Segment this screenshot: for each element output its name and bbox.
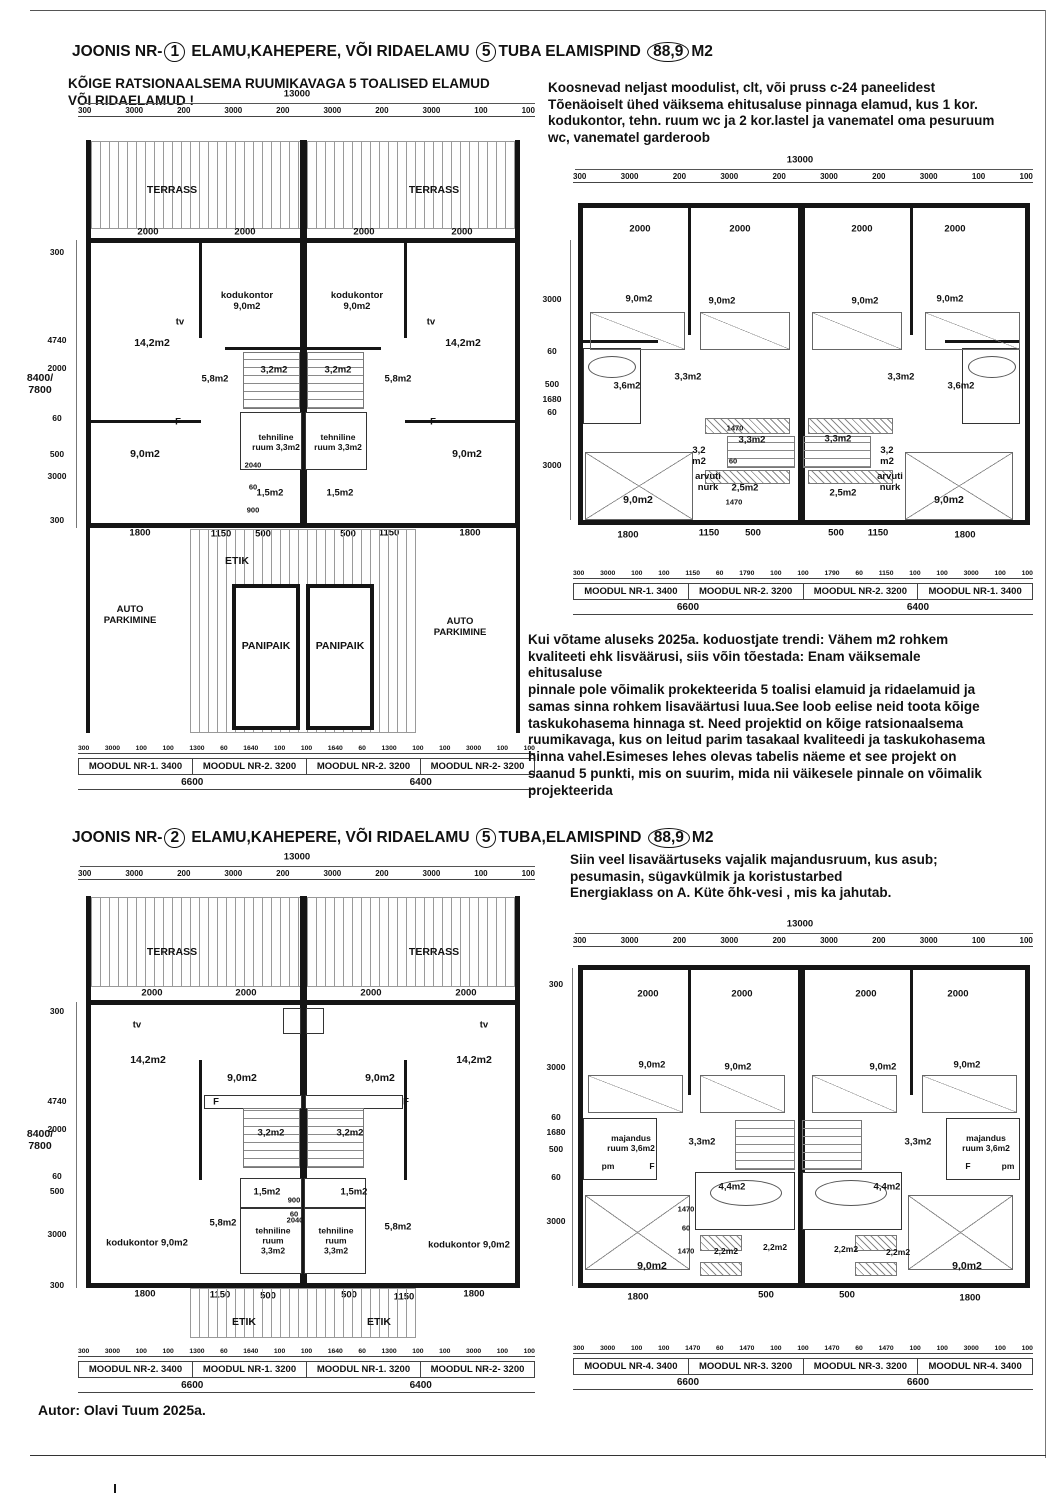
module-row: MOODUL NR-1. 3400 MOODUL NR-2. 3200 MOOD… <box>573 583 1033 600</box>
dim-value: 100 <box>163 1348 174 1355</box>
dim-value: 1790 <box>739 570 754 577</box>
room-label: TERRASS <box>147 184 197 196</box>
bed <box>905 452 1013 520</box>
module-label: MOODUL NR-3. 3200 <box>688 1359 803 1375</box>
dim-value: 100 <box>412 1348 423 1355</box>
room-label: 3,2m2 <box>258 1129 285 1140</box>
staircase <box>735 1120 795 1170</box>
room-count-circled: 5 <box>476 828 497 848</box>
fridge-label: F <box>175 418 181 429</box>
dim-value: 300 <box>78 106 91 115</box>
window-dim: 2000 <box>455 989 476 1000</box>
room-label: 3,3m2 <box>905 1138 932 1149</box>
dim-value: 300 <box>78 1348 89 1355</box>
fridge-label: F <box>430 418 436 429</box>
room-label: 2,5m2 <box>732 484 759 495</box>
dim-total-width: 13000 <box>284 90 310 101</box>
room-label: 9,0m2 <box>934 494 964 506</box>
room-label: TERRASS <box>409 184 459 196</box>
dim-value: 100 <box>301 745 312 752</box>
dim-value: 200 <box>177 106 190 115</box>
room-label: PANIPAIK <box>316 640 365 652</box>
dim-line-vertical <box>570 240 571 520</box>
dim-value: 100 <box>994 570 1005 577</box>
module-totals: 6600 6400 <box>78 1378 535 1393</box>
dim-value: 100 <box>497 1348 508 1355</box>
bed <box>700 1075 785 1113</box>
dim-label: 500 <box>745 529 761 540</box>
dim-value: 100 <box>1020 172 1033 181</box>
dim-line <box>80 103 535 104</box>
dim-label: 1150 <box>699 529 720 540</box>
room-label: 9,0m2 <box>623 494 653 506</box>
window-dim: 2000 <box>729 225 750 236</box>
bed <box>922 1075 1017 1113</box>
module-label: MOODUL NR-1. 3400 <box>78 759 192 775</box>
room-label: 5,8m2 <box>385 1223 412 1234</box>
window-dim: 2000 <box>851 225 872 236</box>
module-label: MOODUL NR-1. 3200 <box>192 1362 306 1378</box>
dim-line <box>575 933 1033 934</box>
title-text: JOONIS NR- <box>72 43 162 60</box>
sheet-border-right <box>1045 10 1046 1458</box>
room-label: TERRASS <box>147 946 197 958</box>
dim-value: 1150 <box>879 570 894 577</box>
dim-label: 1800 <box>954 531 975 542</box>
dim-value: 3000 <box>105 1348 120 1355</box>
room-label: 3,2m2 <box>337 1129 364 1140</box>
storage-walls <box>306 584 374 730</box>
drawing-number-circled: 2 <box>164 828 185 848</box>
module-row: MOODUL NR-4. 3400 MOODUL NR-3. 3200 MOOD… <box>573 1358 1033 1375</box>
dim-chain-bottom: 3003000100100147060147010010014706014701… <box>573 1345 1033 1354</box>
joonis1-subtitle: KÕIGE RATSIONAALSEMA RUUMIKAVAGA 5 TOALI… <box>68 76 490 109</box>
dim-value: 1300 <box>382 745 397 752</box>
dim-label: 500 <box>50 450 64 460</box>
dim-chain-bottom: 3003000100100130060164010010016406013001… <box>78 745 535 754</box>
dim-label: 1470 <box>726 499 743 508</box>
dim-value: 100 <box>301 1348 312 1355</box>
room-count-circled: 5 <box>476 42 497 62</box>
room-label: 1,5m2 <box>257 489 284 500</box>
dim-value: 100 <box>631 570 642 577</box>
dim-value: 60 <box>716 570 724 577</box>
dim-value: 200 <box>872 172 885 181</box>
dim-value: 200 <box>673 172 686 181</box>
interior-wall <box>404 243 407 338</box>
bed <box>925 312 1020 350</box>
dim-value: 100 <box>658 570 669 577</box>
room-label: 9,0m2 <box>637 1260 667 1272</box>
dim-label: 900 <box>288 1197 301 1206</box>
room-label: 3,2 m2 <box>692 446 706 468</box>
room-label: ETIK <box>225 555 249 567</box>
room-label: 14,2m2 <box>445 337 481 349</box>
dim-label: 500 <box>545 380 559 390</box>
dim-value: 60 <box>220 1348 228 1355</box>
module-totals: 6600 6400 <box>573 600 1033 615</box>
dim-value: 60 <box>855 1345 863 1352</box>
dim-chain-top: 3003000200300020030002003000100100 <box>78 869 535 880</box>
dim-label: 3000 <box>547 1063 566 1073</box>
module-label: MOODUL NR-2. 3200 <box>688 584 803 600</box>
module-label: MOODUL NR-2- 3200 <box>420 1362 535 1378</box>
total-dim: 6400 <box>803 600 1033 615</box>
dim-line <box>575 169 1033 170</box>
wardrobe <box>855 1262 897 1276</box>
dim-label: 60 <box>551 1113 560 1123</box>
window-dim: 2000 <box>855 990 876 1001</box>
wall <box>86 527 90 733</box>
dim-value: 3000 <box>224 869 242 878</box>
room-label: 1,5m2 <box>341 1188 368 1199</box>
room-label: 3,6m2 <box>614 382 641 393</box>
dim-label: 500 <box>828 529 844 540</box>
interior-wall <box>910 970 913 1095</box>
dim-value: 1300 <box>189 745 204 752</box>
room-label: 9,0m2 <box>954 1061 981 1072</box>
bed <box>812 1075 897 1113</box>
module-totals: 6600 6600 <box>573 1375 1033 1390</box>
dim-value: 100 <box>524 1348 535 1355</box>
room-label: 2,2m2 <box>763 1243 787 1253</box>
interior-wall <box>91 420 201 423</box>
module-label: MOODUL NR-1. 3400 <box>573 584 688 600</box>
dim-value: 100 <box>474 869 487 878</box>
room-label: AUTO PARKIMINE <box>434 617 487 639</box>
room-label: 3,2m2 <box>261 366 288 377</box>
dim-value: 3000 <box>920 172 938 181</box>
storage-walls <box>232 584 300 730</box>
window-dim: 2000 <box>944 225 965 236</box>
fridge-label: F <box>649 1162 654 1172</box>
dim-total-width: 13000 <box>284 853 310 864</box>
dim-value: 100 <box>1022 570 1033 577</box>
washer-label: pm <box>602 1162 615 1172</box>
room-label: ETIK <box>367 1316 391 1328</box>
dim-value: 100 <box>972 172 985 181</box>
dim-value: 1640 <box>328 745 343 752</box>
area-circled: 88,9 <box>648 828 690 848</box>
module-label: MOODUL NR-2. 3200 <box>306 759 420 775</box>
dim-label: 1680 <box>543 395 562 405</box>
dim-value: 3000 <box>621 936 639 945</box>
dim-value: 3000 <box>964 1345 979 1352</box>
sheet-border-top <box>30 10 1046 11</box>
joonis2-title: JOONIS NR-2 ELAMU,KAHEPERE, VÕI RIDAELAM… <box>72 828 713 848</box>
bed <box>588 1075 683 1113</box>
module-label: MOODUL NR-4. 3400 <box>573 1359 688 1375</box>
dim-label: 3000 <box>543 461 562 471</box>
window-dim: 2000 <box>629 225 650 236</box>
dim-label: 1150 <box>868 529 889 540</box>
room-label: 3,3m2 <box>888 373 915 384</box>
dim-value: 200 <box>375 869 388 878</box>
dim-value: 3000 <box>466 745 481 752</box>
room-label: 3,2 m2 <box>880 446 894 468</box>
module-label: MOODUL NR-3. 3200 <box>803 1359 918 1375</box>
room-label: 2,2m2 <box>714 1247 738 1257</box>
dim-label: 1800 <box>959 1294 980 1305</box>
room-label: 9,0m2 <box>130 448 160 460</box>
dim-label: 1800 <box>627 1293 648 1304</box>
dim-value: 100 <box>274 1348 285 1355</box>
washer-label: pm <box>1002 1162 1015 1172</box>
room-label: kodukontor 9,0m2 <box>428 1241 510 1252</box>
dim-label: 1470 <box>727 425 744 434</box>
room-label: 9,0m2 <box>952 1260 982 1272</box>
dim-label: 2040 <box>287 1217 304 1226</box>
dim-label: 3000 <box>543 295 562 305</box>
dim-value: 200 <box>772 936 785 945</box>
dim-total-width: 13000 <box>787 156 813 167</box>
dim-label: 1800 <box>134 1290 155 1301</box>
dim-value: 300 <box>573 172 586 181</box>
room-label: TERRASS <box>409 946 459 958</box>
room-label: kodukontor 9,0m2 <box>221 291 273 313</box>
title-text: TUBA,ELAMISPIND <box>498 829 641 846</box>
staircase <box>307 352 364 409</box>
room-label: 5,8m2 <box>385 375 412 386</box>
fridge-label: F <box>403 1098 409 1109</box>
dim-label: 1800 <box>617 531 638 542</box>
dim-value: 200 <box>872 936 885 945</box>
window-dim: 2000 <box>360 989 381 1000</box>
dim-label: 500 <box>50 1187 64 1197</box>
dim-value: 300 <box>78 869 91 878</box>
dim-value: 100 <box>937 1345 948 1352</box>
room-label: 4,4m2 <box>874 1183 901 1194</box>
room-label: 9,0m2 <box>227 1072 257 1084</box>
room-label: kodukontor 9,0m2 <box>331 291 383 313</box>
dim-label: 900 <box>247 507 260 516</box>
dim-label: 60 <box>682 1225 690 1234</box>
room-label: tv <box>480 1021 488 1032</box>
dim-value: 200 <box>177 869 190 878</box>
dim-value: 60 <box>855 570 863 577</box>
wardrobe <box>808 418 893 434</box>
interior-wall <box>688 207 691 335</box>
dim-label: 4740 <box>48 336 67 346</box>
bed <box>590 312 685 350</box>
room-label: 2,5m2 <box>830 489 857 500</box>
room-label: PANIPAIK <box>242 640 291 652</box>
room-label: arvuti nurk <box>695 472 721 494</box>
dim-value: 100 <box>909 570 920 577</box>
dim-label: 300 <box>50 1007 64 1017</box>
dim-value: 1300 <box>189 1348 204 1355</box>
dim-value: 300 <box>573 936 586 945</box>
room-label: 4,4m2 <box>719 1183 746 1194</box>
room-label: 14,2m2 <box>456 1054 492 1066</box>
dim-value: 1470 <box>879 1345 894 1352</box>
dim-label: 500 <box>549 1145 563 1155</box>
dim-value: 100 <box>1020 936 1033 945</box>
dim-label: 300 <box>50 516 64 526</box>
dim-value: 100 <box>136 1348 147 1355</box>
room-label: 3,3m2 <box>689 1138 716 1149</box>
sheet-tick-mark <box>114 1484 116 1493</box>
dim-total-height: 8400/ 7800 <box>27 372 53 396</box>
dim-line-vertical <box>76 1002 77 1288</box>
dim-value: 3000 <box>820 936 838 945</box>
dim-value: 100 <box>136 745 147 752</box>
room-label: 9,0m2 <box>452 448 482 460</box>
dim-line-vertical <box>572 968 573 1286</box>
room-label: 3,6m2 <box>948 382 975 393</box>
dim-label: 60 <box>547 347 556 357</box>
dim-value: 3000 <box>720 936 738 945</box>
dim-value: 3000 <box>621 172 639 181</box>
interior-wall <box>405 420 515 423</box>
dim-value: 3000 <box>920 936 938 945</box>
dim-label: 4740 <box>48 1097 67 1107</box>
interior-wall <box>199 1060 202 1180</box>
room-label: tv <box>176 318 184 329</box>
dim-line-vertical <box>76 240 77 528</box>
room-label: 2,2m2 <box>886 1248 910 1258</box>
dim-chain-top: 3003000200300020030002003000100100 <box>573 936 1033 947</box>
party-wall <box>798 203 805 525</box>
window-dim: 2000 <box>637 990 658 1001</box>
sheet-border-bottom <box>30 1455 1046 1456</box>
module-label: MOODUL NR-2. 3200 <box>803 584 918 600</box>
dim-value: 100 <box>522 106 535 115</box>
room-label: 3,3m2 <box>825 435 852 446</box>
dim-label: 2040 <box>245 462 262 471</box>
room-label: tehniline ruum 3,3m2 <box>314 433 362 453</box>
dim-label: 3000 <box>48 1230 67 1240</box>
dim-value: 3000 <box>423 869 441 878</box>
interior-wall <box>225 347 303 350</box>
room-label: 9,0m2 <box>365 1072 395 1084</box>
dim-label: 1470 <box>678 1248 695 1257</box>
room-label: 5,8m2 <box>202 375 229 386</box>
bathtub <box>968 356 1016 378</box>
room-label: tehniline ruum 3,3m2 <box>256 1226 291 1255</box>
stove <box>306 1008 324 1034</box>
dim-value: 1470 <box>685 1345 700 1352</box>
dim-label: 1800 <box>459 529 480 540</box>
dim-label: 60 <box>547 408 556 418</box>
module-label: MOODUL NR-1. 3400 <box>917 584 1033 600</box>
dim-value: 100 <box>631 1345 642 1352</box>
dim-value: 60 <box>716 1345 724 1352</box>
module-label: MOODUL NR-2. 3400 <box>78 1362 192 1378</box>
module-label: MOODUL NR-2- 3200 <box>420 759 535 775</box>
fridge-label: F <box>965 1162 970 1172</box>
module-label: MOODUL NR-2. 3200 <box>192 759 306 775</box>
dim-value: 1640 <box>328 1348 343 1355</box>
joonis2-description: Siin veel lisaväärtuseks vajalik majandu… <box>570 852 1040 902</box>
bed <box>908 1195 1013 1270</box>
dim-value: 3000 <box>600 570 615 577</box>
marketing-text: Kui võtame aluseks 2025a. koduostjate tr… <box>528 632 1043 799</box>
drawing-number-circled: 1 <box>164 42 185 62</box>
total-dim: 6400 <box>307 775 536 790</box>
dim-value: 100 <box>497 745 508 752</box>
room-label: 9,0m2 <box>639 1061 666 1072</box>
driveway-hatching <box>190 529 416 733</box>
dim-value: 3000 <box>323 869 341 878</box>
module-label: MOODUL NR-1. 3200 <box>306 1362 420 1378</box>
total-dim: 6600 <box>78 775 307 790</box>
bed <box>812 312 902 350</box>
room-label: 3,3m2 <box>675 373 702 384</box>
interior-wall <box>199 243 202 338</box>
dim-label: 3000 <box>547 1217 566 1227</box>
wardrobe <box>700 1262 742 1276</box>
dim-value: 300 <box>573 1345 584 1352</box>
area-circled: 88,9 <box>647 42 689 62</box>
staircase <box>243 352 300 409</box>
dim-value: 3000 <box>125 869 143 878</box>
dim-value: 100 <box>163 745 174 752</box>
dim-value: 200 <box>772 172 785 181</box>
dim-chain-top: 3003000200300020030002003000100100 <box>573 172 1033 183</box>
room-label: tehniline ruum 3,3m2 <box>252 433 300 453</box>
room-label: kodukontor 9,0m2 <box>106 1239 188 1250</box>
room-label: 9,0m2 <box>626 295 653 306</box>
room-label: 9,0m2 <box>870 1063 897 1074</box>
title-text: ELAMU,KAHEPERE, VÕI RIDAELAMU <box>191 829 469 846</box>
window-dim: 2000 <box>235 989 256 1000</box>
title-text: JOONIS NR- <box>72 829 162 846</box>
room-label: 5,8m2 <box>210 1219 237 1230</box>
dim-value: 3000 <box>600 1345 615 1352</box>
room-label: 2,2m2 <box>834 1245 858 1255</box>
total-dim: 6600 <box>573 600 803 615</box>
module-label: MOODUL NR-4. 3400 <box>917 1359 1033 1375</box>
dim-value: 3000 <box>423 106 441 115</box>
room-label: AUTO PARKIMINE <box>104 605 157 627</box>
dim-label: 300 <box>549 980 563 990</box>
dim-value: 100 <box>936 570 947 577</box>
dim-value: 100 <box>474 106 487 115</box>
joonis1-description: Koosnevad neljast moodulist, clt, või pr… <box>548 80 1048 147</box>
module-totals: 6600 6400 <box>78 775 535 790</box>
dim-total-width: 13000 <box>787 920 813 931</box>
drawing-sheet: JOONIS NR-1 ELAMU,KAHEPERE, VÕI RIDAELAM… <box>0 0 1058 1497</box>
dim-value: 100 <box>522 869 535 878</box>
dim-label: 3000 <box>48 472 67 482</box>
dim-value: 60 <box>358 745 366 752</box>
dim-value: 200 <box>375 106 388 115</box>
dim-value: 200 <box>276 869 289 878</box>
dim-label: 500 <box>758 1291 774 1302</box>
dim-value: 1640 <box>243 745 258 752</box>
dim-chain-top: 3003000200300020030002003000100100 <box>78 106 535 117</box>
room-label: 9,0m2 <box>937 295 964 306</box>
interior-wall <box>303 347 381 350</box>
dim-value: 3000 <box>323 106 341 115</box>
dim-label: 60 <box>729 458 737 467</box>
total-dim: 6400 <box>307 1378 536 1393</box>
dim-label: 1470 <box>678 1206 695 1215</box>
room-label: tehniline ruum 3,3m2 <box>319 1226 354 1255</box>
dim-value: 200 <box>673 936 686 945</box>
dim-value: 1790 <box>824 570 839 577</box>
room-label: 9,0m2 <box>709 297 736 308</box>
dim-value: 3000 <box>224 106 242 115</box>
dim-value: 60 <box>220 745 228 752</box>
room-label: 9,0m2 <box>852 297 879 308</box>
dim-label: 500 <box>839 1291 855 1302</box>
dim-value: 300 <box>78 745 89 752</box>
room-label: 14,2m2 <box>130 1054 166 1066</box>
dim-label: 300 <box>50 248 64 258</box>
title-text: TUBA ELAMISPIND <box>498 43 640 60</box>
